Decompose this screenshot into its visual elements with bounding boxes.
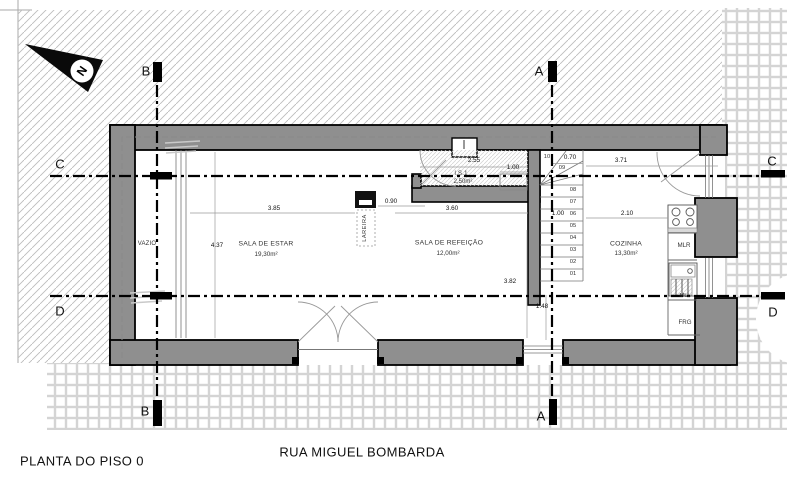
floor-plan-drawing xyxy=(0,0,793,482)
sink-icon xyxy=(669,263,697,296)
fireplace-lareira-label: LAREIRA xyxy=(363,214,369,241)
section-b-bottom-label: B xyxy=(141,405,150,418)
room-cozinha-label: COZINHA xyxy=(610,242,642,249)
section-a-bottom-label: A xyxy=(537,410,546,423)
dim-is1-width: 2.55 xyxy=(468,158,480,164)
floor-plan-canvas: N B A C D C D B A VAZIO SALA DE ESTAR 19… xyxy=(0,0,793,482)
dim-window-offset: 1.48 xyxy=(536,304,548,310)
stair-step-06: 06 xyxy=(570,212,576,218)
dim-refeicao-depth: 3.82 xyxy=(504,279,516,285)
room-sala-de-refeicao-label: SALA DE REFEIÇÃO xyxy=(415,241,483,248)
stair-step-01: 01 xyxy=(570,272,576,278)
room-cozinha-area: 13,30m² xyxy=(614,251,637,257)
stair-step-05: 05 xyxy=(570,224,576,230)
section-d-right-label: D xyxy=(768,306,777,319)
room-sala-de-estar-label: SALA DE ESTAR xyxy=(239,242,294,249)
dim-estar-depth: 4.37 xyxy=(211,243,223,249)
stair-step-09: 09 xyxy=(559,166,565,172)
room-is1-area: 2,50m² xyxy=(454,179,473,185)
street-label: RUA MIGUEL BOMBARDA xyxy=(279,446,444,459)
window-threshold-south xyxy=(523,340,563,365)
dim-estar-width: 3.85 xyxy=(268,206,280,212)
appliance-mll-label: MLL xyxy=(679,294,690,300)
room-is1-label: I.S.1 xyxy=(454,171,467,177)
room-vazio-label: VAZIO xyxy=(138,241,157,247)
stair-step-08: 08 xyxy=(570,188,576,194)
dim-stair-mid: 1.00 xyxy=(552,211,564,217)
stair-step-03: 03 xyxy=(570,248,576,254)
stair-step-07: 07 xyxy=(570,200,576,206)
dim-is1-fixture: 1.00 xyxy=(507,165,519,171)
dim-cozinha-total: 3.71 xyxy=(615,158,627,164)
appliance-mlr-label: MLR xyxy=(677,243,690,249)
door-threshold-south xyxy=(298,340,378,365)
room-sala-de-estar-area: 19,30m² xyxy=(254,252,277,258)
dim-stair-top: 0.70 xyxy=(564,155,576,161)
dim-refeicao-width: 3.60 xyxy=(446,206,458,212)
stair-step-10: 10 xyxy=(544,155,550,161)
section-d-left-label: D xyxy=(55,305,64,318)
appliance-frg-label: FRG xyxy=(678,320,691,326)
section-a-top-label: A xyxy=(535,65,544,78)
stove-icon xyxy=(668,205,697,233)
section-c-right-label: C xyxy=(767,155,776,168)
section-c-left-label: C xyxy=(55,158,64,171)
stair-step-02: 02 xyxy=(570,260,576,266)
section-b-top-label: B xyxy=(142,65,151,78)
room-sala-de-refeicao-area: 12,00m² xyxy=(436,251,459,257)
dim-cozinha-width: 2.10 xyxy=(621,211,633,217)
dim-lareira-offset: 0.90 xyxy=(385,199,397,205)
stair-step-04: 04 xyxy=(570,236,576,242)
drawing-title: PLANTA DO PISO 0 xyxy=(20,455,144,468)
